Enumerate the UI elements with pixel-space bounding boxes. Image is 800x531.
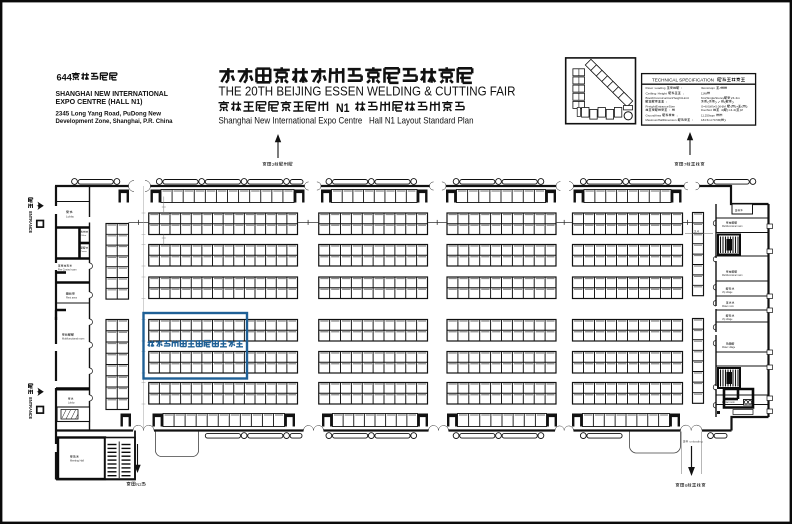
svg-text:Multifunctional room: Multifunctional room [722,274,743,277]
svg-text:): ) [746,105,748,109]
svg-text:Meeting Hall: Meeting Hall [70,460,84,463]
svg-text:Rest area: Rest area [66,297,77,300]
svg-text:Lobby: Lobby [66,215,74,219]
svg-text:Height: Height [658,91,667,95]
svg-text:MaximumHallDimension: MaximumHallDimension [646,118,677,122]
svg-text:Water room: Water room [722,305,734,308]
svg-text::: : [666,100,668,104]
svg-text:Multifunctional room: Multifunctional room [62,338,84,341]
svg-text:2: 2 [272,162,275,167]
svg-text:Vip village: Vip village [722,319,733,321]
svg-text:N1: N1 [336,101,350,115]
svg-text::: : [692,118,694,122]
svg-text:Fire Control room: Fire Control room [58,268,77,271]
svg-text:N2: N2 [136,482,142,488]
svg-text:EXPO CENTRE (HALL N1): EXPO CENTRE (HALL N1) [56,97,143,106]
svg-text:Power: Power [81,250,87,253]
svg-text:/: / [720,86,722,90]
svg-text:Water village: Water village [722,346,736,349]
svg-text:3tons/sqm: 3tons/sqm [701,86,715,90]
svg-text:DoorNo4: DoorNo4 [701,108,712,112]
svg-text:11M/: 11M/ [701,91,707,95]
svg-text:184.5m×70.5M(: 184.5m×70.5M( [701,118,722,122]
svg-text:11,250sqm: 11,250sqm [701,113,715,117]
svg-text::: : [669,108,671,112]
svg-text:TECHNICAL SPECIFICATION: TECHNICAL SPECIFICATION [652,77,715,83]
svg-text:6: 6 [685,483,688,488]
svg-text:unloading: unloading [690,440,704,444]
svg-text::: : [676,113,678,117]
svg-text:): ) [724,118,726,122]
svg-text:THE 20TH BEIJING ESSEN WELDING: THE 20TH BEIJING ESSEN WELDING & CUTTING… [219,85,516,99]
svg-text:)M: )M [740,108,743,112]
svg-text:Office: Office [81,235,87,237]
svg-text:Vip village: Vip village [722,292,733,294]
svg-text:ENTRANCE: ENTRANCE [27,211,33,234]
svg-text:): ) [715,100,717,104]
svg-text:3.4: 3.4 [694,230,699,234]
svg-text:Shanghai New International Exp: Shanghai New International Expo Centre H… [219,116,474,126]
svg-text:Lobby: Lobby [68,401,75,404]
svg-text:): ) [732,100,734,104]
svg-text:/: / [718,100,720,104]
svg-text::: : [683,91,685,95]
svg-text:644: 644 [57,73,73,83]
svg-text:GroundArea: GroundArea [646,113,662,117]
svg-text:FreightEntranceSize: FreightEntranceSize [646,105,676,109]
svg-text:7: 7 [684,162,687,167]
svg-text:Ceiling: Ceiling [646,91,657,95]
svg-text:ENTRANCE: ENTRANCE [27,397,33,420]
svg-text:)×4.2(: )×4.2( [727,108,737,112]
svg-text:Floor: Floor [646,86,654,90]
svg-text:Loading: Loading [655,86,666,90]
svg-text:Multifunctional room: Multifunctional room [722,225,743,228]
svg-text:2345 Long Yang Road, PuDong Ne: 2345 Long Yang Road, PuDong New [56,110,162,117]
svg-text:Development Zone, Shanghai, P.: Development Zone, Shanghai, P.R. China [56,118,173,125]
svg-text:6m(SingleStorey: 6m(SingleStorey [701,96,725,100]
svg-text::: : [681,86,683,90]
